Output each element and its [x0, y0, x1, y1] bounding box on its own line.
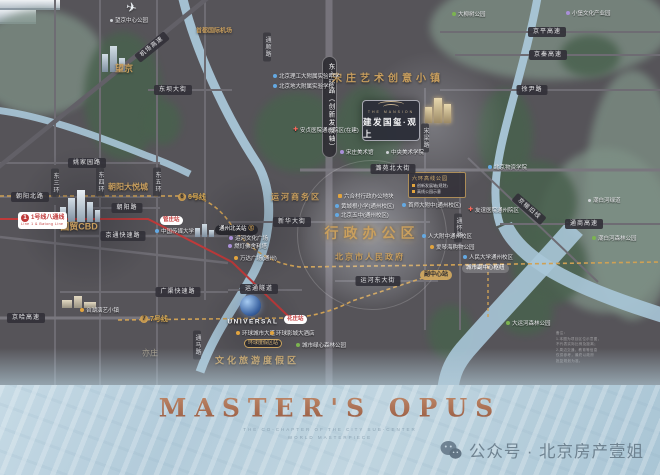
vertical-road-label: 东三环 [51, 169, 59, 198]
poi-label: 潮白河绿道 [593, 196, 621, 204]
zone-label: 运河商务区 [271, 192, 321, 203]
poi-label: 大运河森林公园 [512, 319, 551, 327]
map-poi: 运河文化广场 [229, 234, 268, 242]
map-poi: ✚友谊医院通州院区 [468, 206, 519, 214]
poi-dot-icon [402, 203, 406, 207]
zone-label: 望京 [115, 62, 133, 75]
vertical-road-label: 东五环 [153, 168, 161, 197]
poi-label: 运河文化广场 [235, 234, 268, 242]
poi-label: 安贞医院通州院区(在建) [300, 126, 359, 134]
map-poi: 环球影城大酒店 [270, 329, 315, 337]
map-poi: 北京理工大附属实验中学 [273, 72, 340, 80]
road-band-label: 通商高速 [565, 219, 603, 229]
beiguan-towers-illustration [195, 224, 214, 237]
poi-dot-icon [506, 321, 510, 325]
road-band-label: 潞苑北大街 [370, 164, 415, 174]
vertical-road-label: 通顺路 [263, 33, 271, 62]
poi-label: 六合村行政办公地块 [344, 192, 394, 200]
map-poi: 大柳树公园 [452, 10, 486, 18]
watermark: 公众号 · 北京房产壹姐 [440, 438, 644, 462]
map-poi: 首师大附中(通州校区) [402, 201, 461, 209]
zone-label: 北京市人民政府 [335, 252, 405, 263]
line-number-icon: 1 [21, 214, 29, 222]
footer-title: MASTER'S OPUS [159, 394, 501, 423]
map-poi: 爱琴海购物公园 [430, 243, 475, 251]
poi-label: 望京中心公园 [115, 16, 148, 24]
map-poi: 大运河森林公园 [506, 319, 551, 327]
poi-label: 黄城根小学(通州校区) [341, 202, 394, 210]
line-number-icon: 6 [178, 193, 186, 201]
zone-label: 首都国际机场 [196, 26, 232, 35]
metro-line-badge: 66号线 [178, 193, 206, 201]
poi-dot-icon [335, 204, 339, 208]
universal-logo-text: UNIVERSAL [227, 319, 278, 326]
poi-label: 北京物资学院 [494, 163, 527, 171]
map-poi: 中国传媒大学 [155, 227, 194, 235]
road-band-label: 朝阳北路 [11, 192, 49, 202]
legend-square-icon [412, 184, 415, 187]
road-band-label: 运通隧道 [240, 284, 278, 294]
road-band-label: 新华大街 [273, 217, 311, 227]
poi-dot-icon [273, 74, 277, 78]
poi-dot-icon [335, 213, 339, 217]
project-logo-icon [378, 101, 404, 108]
poi-dot-icon [229, 236, 233, 240]
poi-label: 燃灯佛舍利塔 [234, 242, 267, 250]
poi-label: 中央美术学院 [391, 148, 424, 156]
plan-card: 六环高线公园 创新发展轴(规划) 高线公园示意 [408, 172, 466, 198]
poi-dot-icon [488, 165, 492, 169]
map-poi: 黄城根小学(通州校区) [335, 202, 394, 210]
poi-dot-icon [430, 245, 434, 249]
poi-label: 宋庄美术馆 [346, 148, 374, 156]
poi-dot-icon [80, 308, 84, 312]
poi-dot-icon [236, 331, 240, 335]
project-card: THE MANSION 建发国玺·观上 [362, 100, 420, 141]
road-band-label: 徐尹路 [516, 85, 547, 95]
metro-station-badge: 环球度假区站 [244, 339, 282, 348]
map-fade [0, 348, 660, 385]
poi-dot-icon [566, 11, 570, 15]
map-poi: 北京五中(通州校区) [335, 211, 389, 219]
poi-label: 台湖演艺小镇 [86, 306, 119, 314]
metro-station-badge: 花庄站 [284, 315, 307, 324]
watermark-text: 公众号 · 北京房产壹姐 [469, 438, 644, 462]
zone-label: 行政办公区 [325, 223, 420, 243]
poi-label: 爱琴海购物公园 [436, 243, 475, 251]
poi-label: 环球影城大酒店 [276, 329, 315, 337]
poi-label: 北京五中(通州校区) [341, 211, 389, 219]
map-poi: 潮白河森林公园 [592, 234, 637, 242]
map-poi: 燃灯佛舍利塔 [228, 242, 267, 250]
poi-dot-icon [463, 255, 467, 259]
map-poi: 宋庄美术馆 [340, 148, 374, 156]
map-poi: 潮白河绿道 [588, 196, 621, 204]
plan-card-row2: 高线公园示意 [417, 189, 441, 195]
poi-label: 中国传媒大学 [161, 227, 194, 235]
map-poi: 北京地大附属实验学校 [273, 82, 334, 90]
map-poi: 望京中心公园 [110, 16, 148, 24]
location-map-poster: ✈ UNIVERSAL 东六环路（创新发展轴） THE MANSION 建发国玺… [0, 0, 660, 475]
poi-dot-icon [110, 19, 113, 22]
metro-line-badge: 11号线八通线Line 1 & Batong Line [18, 212, 67, 229]
poi-label: 北京理工大附属实验中学 [279, 72, 340, 80]
poi-dot-icon [273, 84, 277, 88]
road-band-label: 广渠快速路 [155, 287, 200, 297]
road-band-label: 京秦高速 [529, 50, 567, 60]
poi-dot-icon [340, 150, 344, 154]
universal-globe-icon [240, 295, 261, 316]
poi-label: 首师大附中(通州校区) [408, 201, 461, 209]
zone-label: 宋庄艺术创意小镇 [332, 70, 444, 85]
map-poi: 万达广场(通州) [234, 254, 277, 262]
metro-station-badge: 通州北关站Ⓢ [215, 225, 258, 235]
poi-dot-icon [588, 199, 591, 202]
poi-dot-icon [386, 151, 389, 154]
metro-station-badge: 城市副中心枢纽 [462, 264, 509, 273]
station-icon: Ⓢ [249, 227, 255, 233]
poi-label: 北京地大附属实验学校 [279, 82, 334, 90]
road-band-label: 东坝大街 [154, 85, 192, 95]
poi-dot-icon [234, 256, 238, 260]
vertical-road-label: 东四环 [96, 168, 104, 197]
wechat-icon [440, 440, 462, 460]
footer-subtitle-2: WORLD MASTERPIECE [288, 435, 372, 440]
poi-label: 人大附中通州校区 [428, 232, 472, 240]
poi-dot-icon [270, 331, 274, 335]
metro-line-badge: 77号线 [140, 315, 168, 323]
poi-dot-icon [422, 234, 426, 238]
road-band-label: 京平高速 [528, 27, 566, 37]
road-band-label: 姚家园路 [68, 158, 106, 168]
poi-label: 潮白河森林公园 [598, 234, 637, 242]
map-poi: 中央美术学院 [386, 148, 424, 156]
map-poi: ✚安贞医院通州院区(在建) [293, 126, 359, 134]
poi-label: 万达广场(通州) [240, 254, 277, 262]
map-poi: 人民大学通州校区 [463, 253, 513, 261]
poi-dot-icon [452, 12, 456, 16]
road-band-label: 京通快速路 [100, 231, 145, 241]
legend-square-icon [412, 190, 415, 193]
metro-station-badge: 副中心站 [420, 270, 452, 280]
poi-dot-icon [592, 236, 596, 240]
project-name-en: THE MANSION [368, 110, 414, 114]
poi-label: 小堡文化产业园 [572, 9, 611, 17]
line-number-icon: 7 [140, 315, 148, 323]
poi-dot-icon [338, 194, 342, 198]
map-poi: 北京物资学院 [488, 163, 527, 171]
map-poi: 六合村行政办公地块 [338, 192, 394, 200]
hospital-cross-icon: ✚ [293, 127, 298, 133]
road-band-label: 运河东大街 [355, 276, 400, 286]
map-poi: 台湖演艺小镇 [80, 306, 119, 314]
poi-label: 人民大学通州校区 [469, 253, 513, 261]
project-name-cn: 建发国玺·观上 [363, 116, 419, 140]
map-poi: 人大附中通州校区 [422, 232, 472, 240]
poi-dot-icon [296, 343, 300, 347]
plan-card-title: 六环高线公园 [412, 175, 462, 182]
footer-subtitle-1: THE CO-CHAPTER OF THE CITY SUB-CENTER [243, 427, 417, 432]
road-band-label: 京哈高速 [7, 313, 45, 323]
poi-label: 友谊医院通州院区 [475, 206, 519, 214]
metro-station-badge: 管庄站 [160, 216, 183, 225]
project-site-buildings [425, 96, 451, 123]
hospital-cross-icon: ✚ [468, 207, 473, 213]
road-band-label: 朝阳路 [111, 203, 142, 213]
zone-label: 朝阳大悦城 [108, 182, 148, 193]
map-poi: 小堡文化产业园 [566, 9, 611, 17]
poi-label: 大柳树公园 [458, 10, 486, 18]
poi-dot-icon [155, 229, 159, 233]
poi-dot-icon [228, 244, 232, 248]
